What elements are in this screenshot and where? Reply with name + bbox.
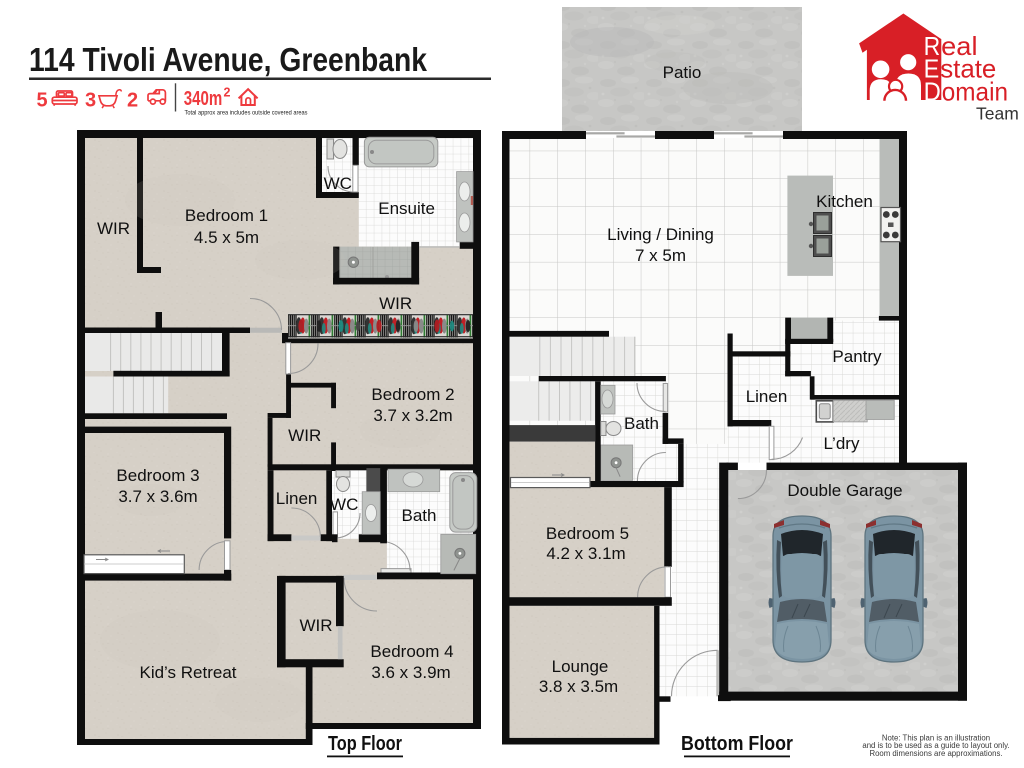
svg-text:340m: 340m bbox=[184, 87, 223, 110]
svg-text:Bedroom 3: Bedroom 3 bbox=[116, 466, 199, 485]
svg-text:WC: WC bbox=[330, 495, 358, 514]
svg-text:Kitchen: Kitchen bbox=[816, 192, 873, 211]
svg-text:Bath: Bath bbox=[624, 414, 659, 433]
svg-text:omain: omain bbox=[942, 77, 1008, 107]
svg-text:Bath: Bath bbox=[402, 506, 437, 525]
svg-text:2: 2 bbox=[127, 90, 138, 112]
svg-text:Bedroom 2: Bedroom 2 bbox=[371, 385, 454, 404]
svg-text:3.7 x 3.2m: 3.7 x 3.2m bbox=[373, 406, 452, 425]
svg-text:3.7 x 3.6m: 3.7 x 3.6m bbox=[118, 487, 197, 506]
svg-text:WIR: WIR bbox=[97, 219, 130, 238]
svg-text:WIR: WIR bbox=[288, 426, 321, 445]
svg-text:L’dry: L’dry bbox=[824, 434, 860, 453]
svg-text:D: D bbox=[924, 77, 941, 107]
svg-text:Total approx area includes out: Total approx area includes outside cover… bbox=[185, 109, 308, 116]
svg-text:5: 5 bbox=[36, 90, 47, 112]
svg-text:Team: Team bbox=[976, 104, 1019, 124]
svg-text:2: 2 bbox=[224, 86, 231, 100]
svg-text:Bedroom 1: Bedroom 1 bbox=[185, 206, 268, 225]
svg-text:Bedroom 5: Bedroom 5 bbox=[546, 524, 629, 543]
svg-text:Top Floor: Top Floor bbox=[328, 733, 402, 755]
svg-text:3: 3 bbox=[85, 90, 96, 112]
svg-text:Lounge: Lounge bbox=[552, 657, 609, 676]
svg-text:7 x 5m: 7 x 5m bbox=[635, 246, 686, 265]
svg-text:Room dimensions are approximat: Room dimensions are approximations. bbox=[869, 749, 1002, 758]
svg-text:Kid’s Retreat: Kid’s Retreat bbox=[139, 663, 236, 682]
svg-text:WIR: WIR bbox=[379, 294, 412, 313]
svg-text:4.2 x 3.1m: 4.2 x 3.1m bbox=[546, 544, 625, 563]
svg-text:Ensuite: Ensuite bbox=[378, 199, 435, 218]
svg-text:114 Tivoli Avenue, Greenbank: 114 Tivoli Avenue, Greenbank bbox=[29, 42, 427, 79]
svg-text:WIR: WIR bbox=[299, 616, 332, 635]
svg-text:Linen: Linen bbox=[746, 387, 788, 406]
svg-text:Pantry: Pantry bbox=[832, 347, 882, 366]
svg-text:WC: WC bbox=[324, 174, 352, 193]
svg-text:Double Garage: Double Garage bbox=[787, 481, 902, 500]
svg-text:Bottom Floor: Bottom Floor bbox=[681, 733, 793, 755]
svg-text:3.6 x 3.9m: 3.6 x 3.9m bbox=[371, 663, 450, 682]
svg-text:Linen: Linen bbox=[276, 489, 318, 508]
svg-text:Living / Dining: Living / Dining bbox=[607, 225, 714, 244]
svg-text:Patio: Patio bbox=[663, 63, 702, 82]
svg-text:3.8 x 3.5m: 3.8 x 3.5m bbox=[539, 677, 618, 696]
svg-text:Bedroom 4: Bedroom 4 bbox=[370, 642, 453, 661]
svg-text:4.5 x 5m: 4.5 x 5m bbox=[194, 228, 259, 247]
